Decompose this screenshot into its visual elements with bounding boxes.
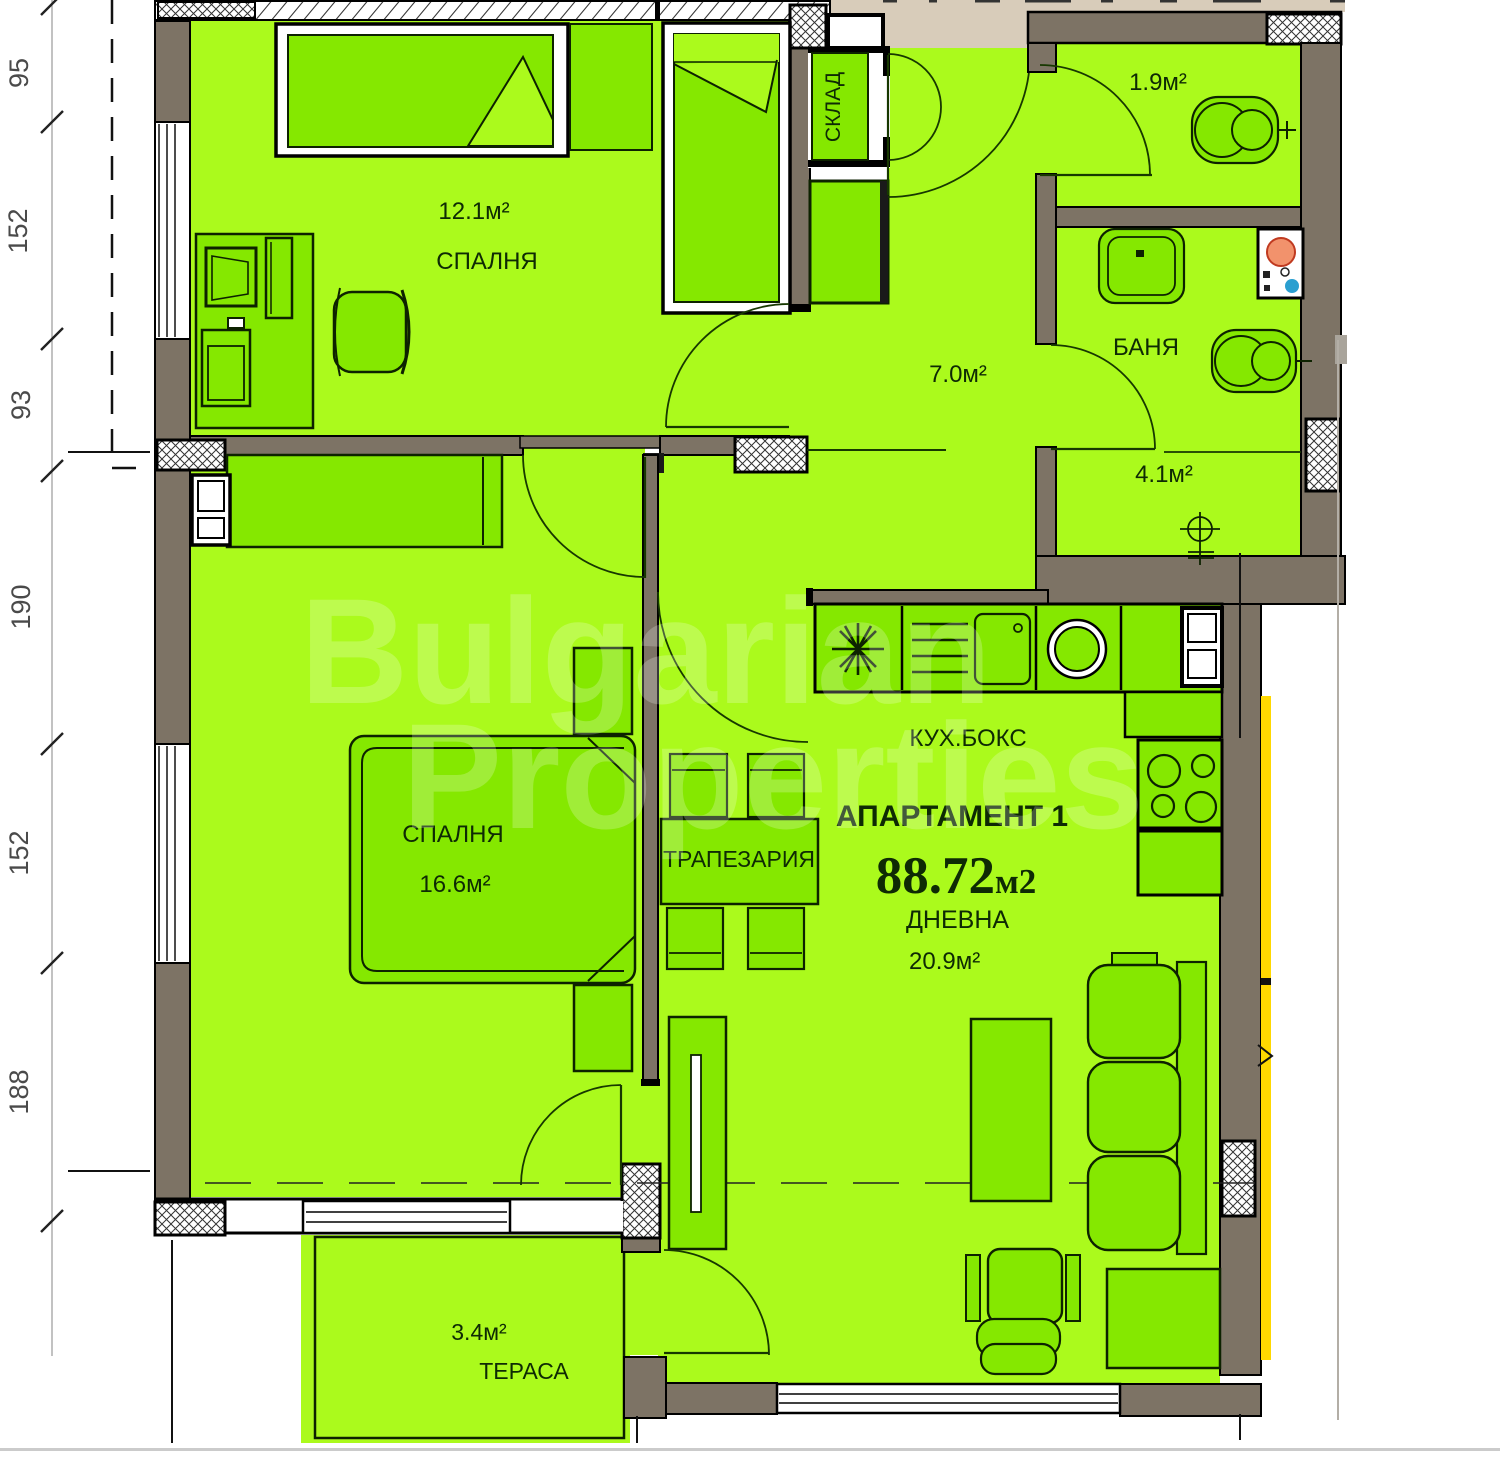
svg-text:12.1м²: 12.1м² bbox=[438, 198, 509, 225]
svg-text:Properties: Properties bbox=[402, 692, 1144, 860]
svg-text:ДНЕВНА: ДНЕВНА bbox=[906, 906, 1009, 934]
svg-text:152: 152 bbox=[4, 830, 34, 875]
svg-text:7.0м²: 7.0м² bbox=[929, 361, 987, 388]
svg-text:152: 152 bbox=[3, 208, 33, 253]
svg-text:16.6м²: 16.6м² bbox=[419, 871, 490, 898]
svg-text:190: 190 bbox=[6, 584, 36, 629]
svg-text:1.9м²: 1.9м² bbox=[1129, 69, 1187, 96]
svg-text:СКЛАД: СКЛАД bbox=[822, 72, 845, 142]
svg-text:93: 93 bbox=[6, 390, 36, 420]
svg-text:4.1м²: 4.1м² bbox=[1135, 461, 1193, 488]
svg-text:СПАЛНЯ: СПАЛНЯ bbox=[436, 248, 538, 275]
svg-text:БАНЯ: БАНЯ bbox=[1113, 334, 1179, 361]
svg-text:188: 188 bbox=[4, 1069, 34, 1114]
svg-text:ТЕРАСА: ТЕРАСА bbox=[479, 1358, 569, 1384]
svg-text:20.9м²: 20.9м² bbox=[909, 948, 980, 975]
svg-text:3.4м²: 3.4м² bbox=[451, 1319, 507, 1345]
svg-text:95: 95 bbox=[4, 58, 34, 88]
